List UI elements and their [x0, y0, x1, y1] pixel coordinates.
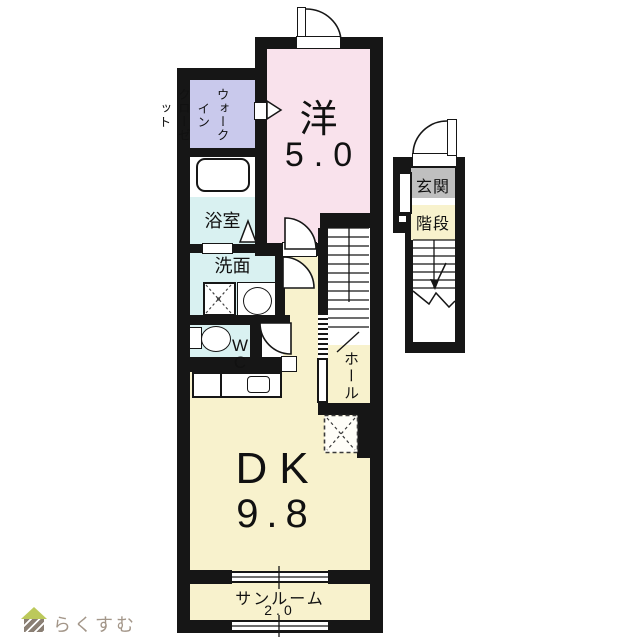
- stairs-railing-hatch: [318, 313, 328, 358]
- washroom-label: 洗面: [190, 252, 275, 278]
- sunroom-window-bottom: [232, 620, 328, 632]
- balcony-door-leaf: [297, 7, 306, 37]
- bedroom-hall-door-threshold: [282, 242, 317, 257]
- wall-closet-top: [177, 68, 267, 80]
- right-stairs-floor: [413, 240, 455, 342]
- bedroom-balcony-door-threshold: [296, 36, 341, 49]
- staircase-label: 階段: [411, 210, 455, 234]
- wall-left: [177, 68, 190, 633]
- sunroom-window-top: [232, 571, 328, 583]
- stair-unit-left-notch: [393, 233, 405, 353]
- entrance-window: [398, 172, 412, 214]
- logo-house-roof-icon: [21, 607, 47, 619]
- bathroom-label: 浴室: [190, 207, 255, 233]
- wc-label: W C: [228, 320, 252, 371]
- main-stairs-floor: [327, 228, 370, 345]
- hall-dk-threshold: [281, 356, 297, 372]
- washing-machine-pan: [203, 282, 236, 316]
- wall-stairs-top: [320, 213, 383, 228]
- logo-house-body-icon: [24, 619, 44, 632]
- wall-sunroom-divider-left: [177, 570, 232, 584]
- bathtub: [196, 158, 250, 192]
- dk-area-label: 9.8: [192, 492, 352, 537]
- wall-bedroom-left: [255, 49, 267, 243]
- vanity-sink: [243, 287, 272, 315]
- toilet-tank: [188, 327, 202, 349]
- wall-closet-bottom: [190, 148, 255, 157]
- kitchen-sink: [247, 376, 270, 393]
- bedroom-name-label: 洋: [267, 88, 370, 143]
- closet-door-threshold: [254, 102, 267, 120]
- sunroom-area-label: 2.0: [205, 602, 355, 618]
- counter-divider: [220, 374, 222, 396]
- closet-label: ウォークイン クローゼット: [196, 84, 250, 146]
- floorplan-canvas: 洋 5.0 ウォークイン クローゼット 浴室 洗面 W C DK 9.8 サンル…: [0, 0, 640, 640]
- entrance-label: 玄関: [411, 173, 455, 197]
- bedroom-area-label: 5.0: [267, 136, 370, 175]
- entrance-door-arc: [413, 121, 447, 154]
- kitchen-counter: [192, 372, 282, 398]
- wall-stairs-left: [318, 228, 328, 313]
- toilet-bowl: [201, 326, 231, 352]
- logo: らくすむ: [21, 606, 161, 634]
- wall-sunroom-divider-right: [328, 570, 383, 584]
- hall-label: ホール: [340, 347, 361, 405]
- entrance-door-leaf: [447, 119, 457, 156]
- wall-fridge-side: [357, 408, 383, 458]
- entrance-step: [411, 198, 455, 205]
- logo-text: らくすむ: [53, 611, 137, 637]
- stairs-handrail: [317, 358, 328, 403]
- dk-name-label: DK: [192, 444, 352, 494]
- wall-gap-dot: [399, 216, 406, 222]
- wall-right: [370, 37, 383, 633]
